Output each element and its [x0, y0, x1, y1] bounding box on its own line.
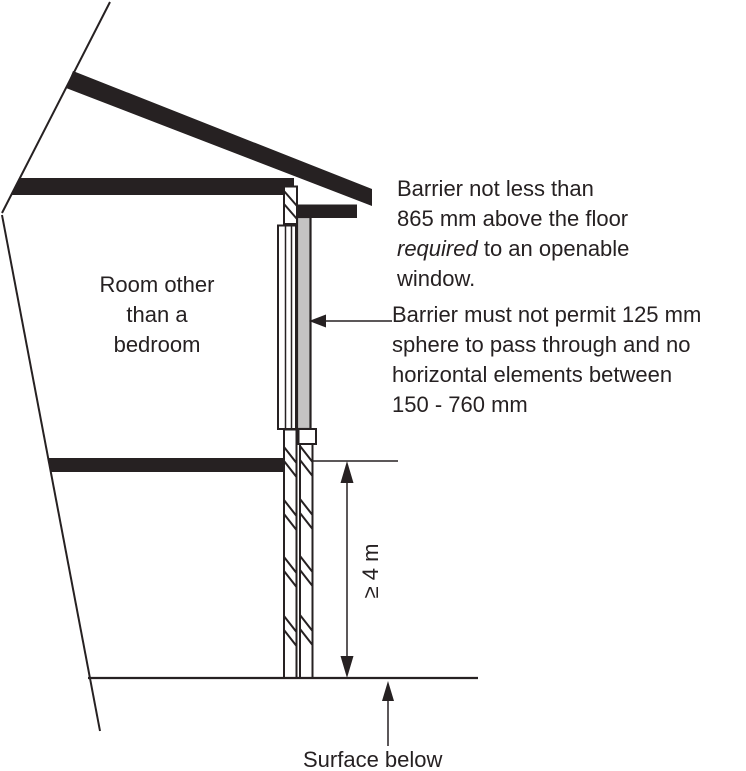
- annotation-line: window.: [397, 264, 629, 294]
- annotation-line: 150 - 760 mm: [392, 390, 701, 420]
- surface-below-label: Surface below: [303, 745, 442, 771]
- room-label-line: than a: [37, 300, 277, 330]
- annotation-line-rest: to an openable: [478, 236, 630, 261]
- annotation-line: Barrier must not permit 125 mm: [392, 300, 701, 330]
- ceiling-beam: [12, 178, 294, 195]
- floor-slab: [48, 458, 284, 472]
- room-label-line: Room other: [37, 270, 277, 300]
- annotation-line: Barrier not less than: [397, 174, 629, 204]
- annotation-italic-word: required: [397, 236, 478, 261]
- dimension-arrowhead-up-icon: [341, 461, 354, 483]
- wall-inner-leaf: [284, 430, 297, 679]
- diagram-canvas: Room other than a bedroom Barrier not le…: [0, 0, 746, 771]
- room-label-line: bedroom: [37, 330, 277, 360]
- annotation-line: horizontal elements between: [392, 360, 701, 390]
- dimension-label: ≥ 4 m: [356, 511, 382, 631]
- annotation-line: sphere to pass through and no: [392, 330, 701, 360]
- barrier-height-annotation: Barrier not less than 865 mm above the f…: [397, 174, 629, 294]
- window-frame: [278, 226, 296, 430]
- window-glass-pane: [297, 217, 311, 429]
- room-label: Room other than a bedroom: [37, 270, 277, 360]
- annotation-line: 865 mm above the floor: [397, 204, 629, 234]
- window-sill: [299, 429, 317, 444]
- barrier-sphere-annotation: Barrier must not permit 125 mm sphere to…: [392, 300, 701, 420]
- dimension-arrowhead-down-icon: [341, 656, 354, 678]
- up-arrow-icon: [382, 681, 394, 701]
- annotation-line: required to an openable: [397, 234, 629, 264]
